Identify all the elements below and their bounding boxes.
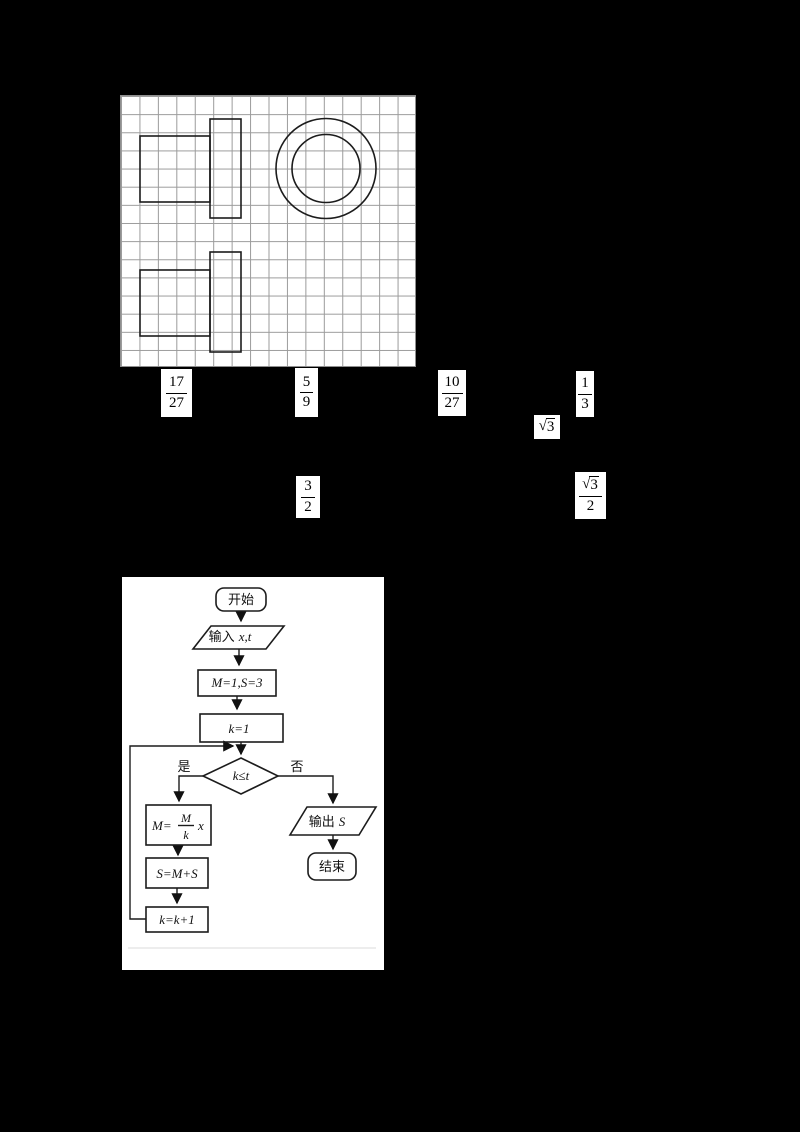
arrow-decision-no-branch <box>278 776 333 803</box>
fraction-1-3: 1 3 <box>576 371 594 417</box>
update-m-numerator: M <box>180 811 192 825</box>
arrow-decision-yes-branch <box>179 776 203 801</box>
fraction-numerator: 10 <box>442 374 463 393</box>
fraction-denominator: 9 <box>303 393 311 411</box>
side-view-rect <box>140 270 210 336</box>
radicand: 3 <box>589 476 599 494</box>
end-label: 结束 <box>319 859 345 874</box>
init-label: M=1,S=3 <box>210 675 263 690</box>
fraction-denominator: 2 <box>587 497 595 515</box>
front-view-rect <box>140 136 210 202</box>
output-label: 输出S <box>309 814 346 829</box>
input-label: 输入x,t <box>209 629 252 644</box>
fraction-numerator: 3 <box>301 478 315 497</box>
fraction-numerator: 5 <box>300 374 314 393</box>
side-view-flange-rect <box>210 252 241 352</box>
three-view-drawing <box>121 96 415 366</box>
fraction-numerator: 17 <box>166 374 187 393</box>
front-view-flange-rect <box>210 119 241 218</box>
fraction-denominator: 27 <box>169 394 184 412</box>
yes-label: 是 <box>177 759 190 774</box>
radical-expression: √ 3 <box>539 418 556 436</box>
fraction-denominator: 2 <box>304 498 312 516</box>
fraction-sqrt3-2: √ 3 2 <box>575 472 606 519</box>
fraction-5-9: 5 9 <box>295 368 318 417</box>
update-m-suffix: x <box>197 818 204 833</box>
update-m-denominator: k <box>183 828 189 842</box>
top-view-outer-circle <box>276 119 376 219</box>
radicand: 3 <box>546 418 556 436</box>
start-label: 开始 <box>228 592 254 607</box>
update-m-prefix: M= <box>151 818 172 833</box>
update-s-label: S=M+S <box>156 866 198 881</box>
radical-expression: √ 3 <box>582 476 599 494</box>
fraction-denominator: 3 <box>581 395 589 413</box>
three-view-grid-figure <box>120 95 416 367</box>
update-k-label: k=k+1 <box>159 912 195 927</box>
fraction-10-27: 10 27 <box>438 370 466 416</box>
fraction-denominator: 27 <box>445 394 460 412</box>
top-view-inner-circle <box>292 135 360 203</box>
k-init-label: k=1 <box>228 721 249 736</box>
fraction-numerator: 1 <box>578 375 592 394</box>
fraction-3-2: 3 2 <box>296 476 320 518</box>
algorithm-flowchart: 开始 输入x,t M=1,S=3 k=1 k≤t 是 否 M= M k x S=… <box>122 577 384 970</box>
fraction-numerator: √ 3 <box>579 476 602 496</box>
fraction-17-27: 17 27 <box>161 369 192 417</box>
decision-label: k≤t <box>233 768 250 783</box>
sqrt-3-formula: √ 3 <box>534 415 560 439</box>
no-label: 否 <box>290 759 303 774</box>
